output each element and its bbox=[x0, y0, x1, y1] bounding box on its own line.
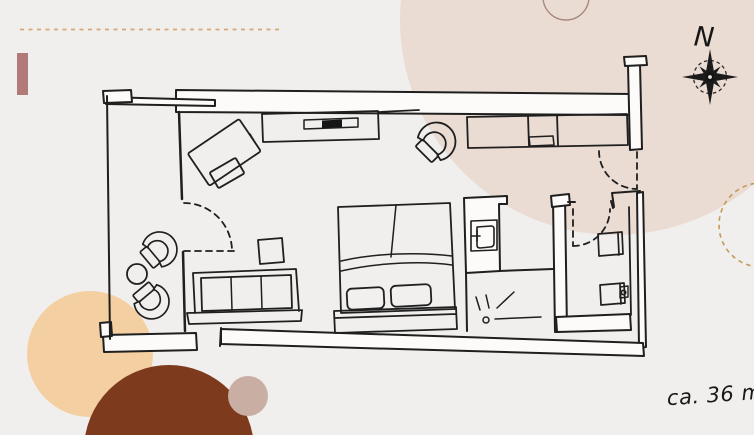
wall-wc-left-cap bbox=[551, 194, 570, 207]
sideboard-tick bbox=[250, 134, 256, 144]
shower-rays bbox=[476, 292, 541, 319]
compass-hub-hole bbox=[708, 75, 712, 79]
floor-plan bbox=[100, 56, 647, 356]
pillow-left bbox=[347, 287, 385, 310]
duvet-crease bbox=[391, 205, 396, 257]
wall-wc-left bbox=[553, 198, 567, 332]
sideboard bbox=[262, 111, 379, 142]
wall-wc-bottom-step bbox=[556, 314, 631, 332]
accent-bar bbox=[17, 53, 28, 95]
area-label: ca. 36 m² bbox=[666, 379, 754, 410]
sofa-plinth bbox=[187, 310, 302, 324]
balcony-door-swing bbox=[184, 203, 232, 251]
toilet-flush-button bbox=[621, 290, 625, 294]
duvet-edge bbox=[341, 254, 452, 271]
side-table bbox=[258, 238, 284, 264]
balcony-table bbox=[127, 264, 147, 284]
wall-interior-lower bbox=[183, 252, 185, 331]
wall-balcony-bottom bbox=[103, 333, 197, 352]
shower-left-edge bbox=[466, 273, 467, 331]
compass-north-label: N bbox=[693, 21, 716, 53]
shower bbox=[476, 292, 541, 323]
sofa bbox=[187, 269, 302, 324]
wall-bottom-main bbox=[221, 329, 644, 356]
wall-interior-upper bbox=[179, 112, 182, 199]
shower-drain bbox=[483, 317, 489, 323]
bottom-wall-cap bbox=[220, 328, 221, 346]
pillow-right bbox=[391, 284, 432, 307]
wall-chimney-cap bbox=[624, 56, 647, 66]
double-bed bbox=[334, 203, 457, 333]
desk-chair bbox=[210, 158, 245, 189]
wc-sink bbox=[598, 232, 623, 256]
wc-fixtures bbox=[598, 232, 628, 305]
hotel-room-floorplan-illustration: N ca. 36 m² bbox=[0, 0, 754, 435]
desk bbox=[188, 119, 261, 186]
tv-screen bbox=[322, 120, 342, 129]
shower-top-edge bbox=[499, 269, 553, 271]
taupe-circle bbox=[228, 376, 268, 416]
wall-chimney bbox=[628, 64, 642, 150]
